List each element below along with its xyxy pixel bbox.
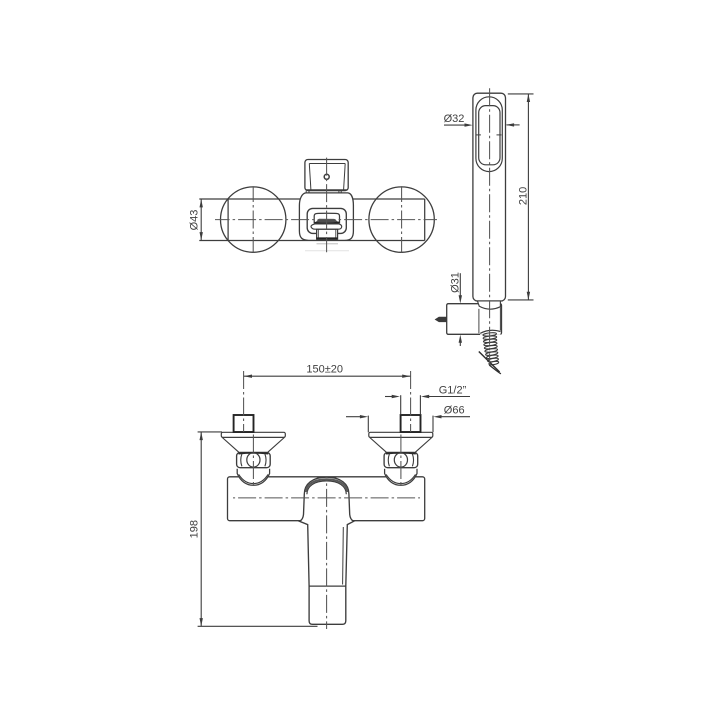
svg-text:G1/2”: G1/2” [439, 385, 467, 397]
svg-text:198: 198 [188, 520, 200, 538]
svg-text:210: 210 [518, 187, 530, 205]
svg-text:Ø66: Ø66 [444, 405, 465, 417]
svg-text:Ø32: Ø32 [444, 113, 465, 125]
svg-text:Ø31: Ø31 [450, 272, 462, 293]
svg-text:150±20: 150±20 [306, 364, 343, 376]
svg-text:Ø43: Ø43 [189, 210, 201, 231]
